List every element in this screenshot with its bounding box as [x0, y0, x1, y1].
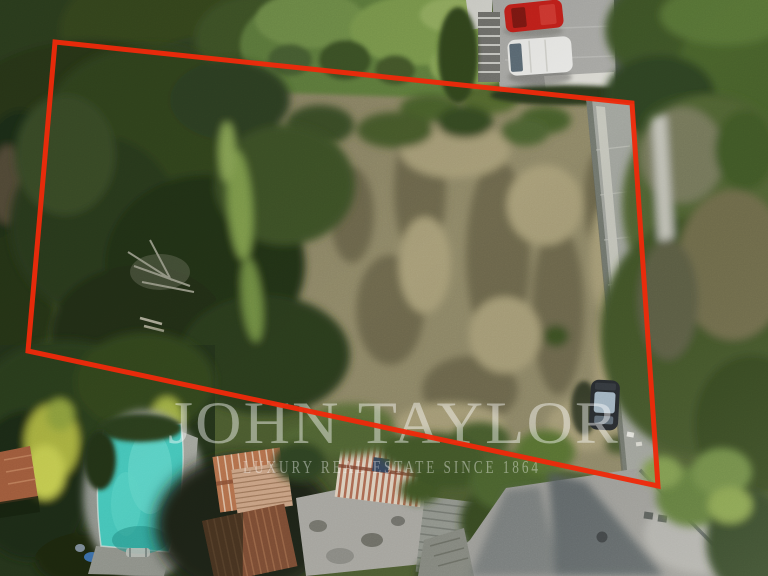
watermark-tagline: LUXURY REAL ESTATE SINCE 1864	[243, 457, 541, 477]
aerial-photo: JOHN TAYLOR LUXURY REAL ESTATE SINCE 186…	[0, 0, 768, 576]
grain-overlay	[0, 0, 768, 576]
scene-svg: JOHN TAYLOR LUXURY REAL ESTATE SINCE 186…	[0, 0, 768, 576]
watermark-brand: JOHN TAYLOR	[168, 390, 620, 456]
